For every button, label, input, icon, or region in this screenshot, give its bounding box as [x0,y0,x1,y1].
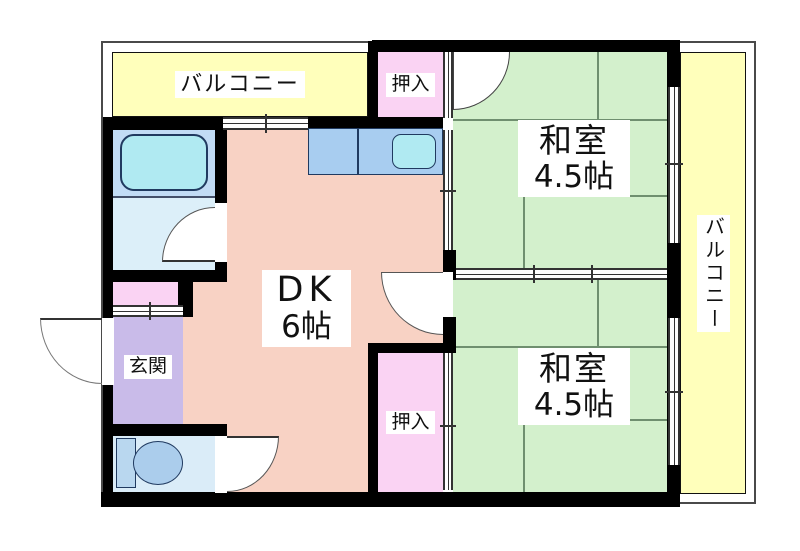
wall [101,492,680,507]
window-entrance [113,305,183,317]
wall [103,424,227,436]
room-bottom-size: 4.5帖 [520,387,628,423]
wall [103,117,223,130]
closet-top-text: 押入 [386,73,434,97]
bathtub-icon [120,134,208,191]
balcony-top-label: バルコニー [112,52,368,117]
floorplan: バルコニー バルコニー 押入 押入 玄関 和室 4.5帖 和室 4.5帖 DK … [0,0,800,551]
balcony-right-label: バルコニー [680,52,746,494]
tatami-line [523,195,525,268]
tatami-line [523,419,525,492]
entrance-label: 玄関 [113,317,183,417]
closet-bottom-label: 押入 [378,353,443,492]
window-room-top-balcony [668,87,680,243]
tatami-line [597,280,599,348]
room-bottom-name: 和室 [520,350,628,387]
room-top-size: 4.5帖 [520,159,628,195]
counter-divider [357,129,359,174]
japanese-room-bottom-label: 和室 4.5帖 [518,348,630,425]
fusuma-between-rooms [456,268,667,280]
room-top-name: 和室 [520,122,628,159]
japanese-room-top-label: 和室 4.5帖 [518,120,630,197]
wall [372,40,680,52]
dk-size: 6帖 [264,309,349,345]
tatami-line [597,52,599,121]
fusuma-closet-top [443,52,453,118]
sliding-door-dk-room-top [443,130,453,250]
utility-nook [113,282,178,305]
toilet-bowl-icon [133,441,183,485]
wall [443,317,456,353]
balcony-right-text: バルコニー [697,215,730,332]
window-balcony-to-dk [223,117,308,130]
closet-top-label: 押入 [378,52,443,118]
window-room-bottom-balcony [668,318,680,465]
dk-label: DK 6帖 [262,270,351,347]
fusuma-closet-bottom [443,353,453,490]
entrance-text: 玄関 [124,355,172,379]
wall [368,343,443,353]
kitchen-sink-icon [392,134,436,169]
wall [103,117,113,507]
balcony-top-text: バルコニー [175,71,305,98]
opening-washroom-door [215,203,227,262]
kitchen-counter-icon [308,128,443,175]
dk-name: DK [264,272,349,309]
wall [103,270,227,282]
wall [368,343,378,492]
opening-toilet-door [215,436,227,493]
closet-bottom-text: 押入 [386,411,434,435]
opening-dk-room-bottom [443,272,453,317]
door-arc-entrance [40,318,102,384]
